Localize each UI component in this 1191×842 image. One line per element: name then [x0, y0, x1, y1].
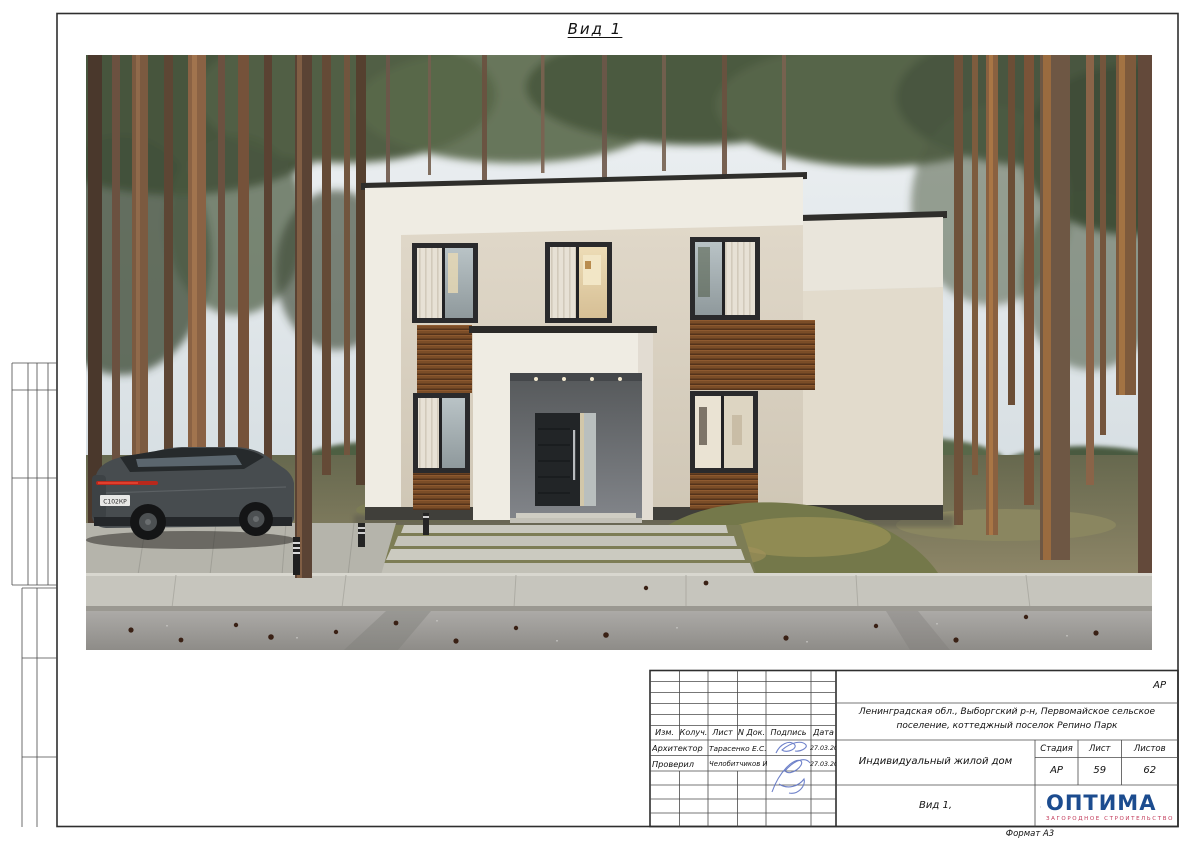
logo-house-icon	[1040, 790, 1041, 824]
sheets-label: Листов	[1122, 744, 1179, 754]
document-code: АР	[836, 680, 1166, 691]
row-architect-date: 27.03.2026	[810, 745, 836, 752]
col-data: Дата	[811, 728, 836, 737]
view-label: Вид 1,	[836, 800, 1035, 811]
sheet-value: 59	[1078, 765, 1122, 776]
row-checker-name: Челобитчиков И.С.	[709, 760, 767, 768]
row-architect-role: Архитектор	[652, 743, 708, 753]
company-logo: ОПТИМА ЗАГОРОДНОЕ СТРОИТЕЛЬСТВО	[1040, 789, 1174, 825]
col-izm: Изм.	[650, 728, 679, 737]
format-label: Формат А3	[980, 829, 1080, 839]
drawing-sheet: Вид 1	[0, 0, 1191, 842]
col-koluch: Колуч.	[679, 728, 708, 737]
stage-value: АР	[1035, 765, 1078, 776]
signature-architect	[776, 742, 806, 753]
col-list: Лист	[708, 728, 737, 737]
row-architect-name: Тарасенко Е.С.	[709, 744, 767, 753]
stage-label: Стадия	[1035, 744, 1078, 754]
signature-checker	[772, 760, 810, 794]
row-checker-date: 27.03.2026	[810, 761, 836, 768]
logo-name: ОПТИМА	[1046, 793, 1174, 814]
project-location: Ленинградская обл., Выборгский р-н, Перв…	[842, 706, 1172, 733]
col-ndok: N Док.	[737, 728, 766, 737]
sheets-value: 62	[1122, 765, 1179, 776]
logo-tagline: ЗАГОРОДНОЕ СТРОИТЕЛЬСТВО	[1046, 816, 1174, 822]
row-checker-role: Проверил	[652, 759, 708, 769]
col-podpis: Подпись	[766, 728, 811, 737]
object-name: Индивидуальный жилой дом	[836, 756, 1035, 767]
sheet-label: Лист	[1078, 744, 1122, 754]
